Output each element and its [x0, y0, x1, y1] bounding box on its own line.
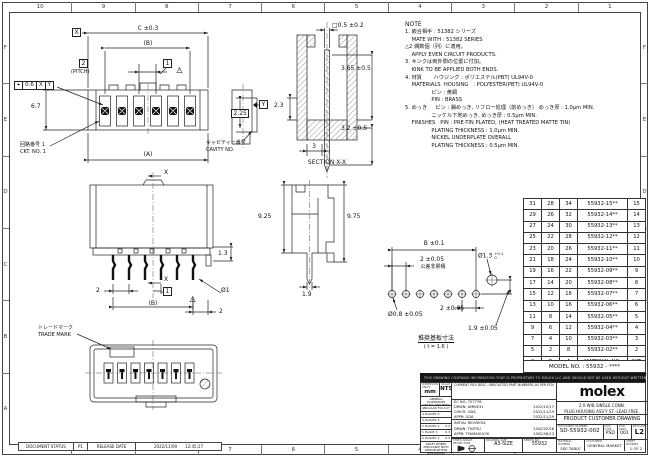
dim-d1-label: Ø1: [221, 287, 230, 294]
section-cut-x-top-label: X: [164, 169, 168, 176]
table-cell: 26: [560, 244, 578, 255]
title-block-middle-column: CURRENT REV DESC: OBSOLETED PART NUMBERS…: [452, 383, 557, 452]
dim-925-label: 9.25: [258, 213, 271, 220]
table-cell: 30: [560, 221, 578, 232]
table-row: 17142055932-08**8: [524, 278, 646, 289]
table-cell: 13: [628, 221, 646, 232]
table-row: 741055932-03**3: [524, 334, 646, 345]
table-cell: 9: [628, 266, 646, 277]
datum-y-label: Y: [259, 100, 268, 109]
grid-ruler-left: F E D C B A: [2, 12, 9, 445]
table-cell: 14: [628, 210, 646, 221]
title-block-right-column: molex 2.0 W/B SINGLE CONN. PLUG HOUSING …: [557, 383, 647, 452]
note-line: ピン : 黄銅: [405, 90, 647, 98]
pitch-text-label: (PITCH): [71, 69, 89, 76]
grid-col-label: 1: [578, 2, 641, 12]
customer-cell: CUSTOMERGENERAL MARKET: [585, 440, 625, 451]
table-cell: 19: [524, 266, 542, 277]
grid-col-label: 2: [514, 2, 577, 12]
note-line: NICKEL UNDERPLATE OVERALL: [405, 135, 647, 143]
table-cell: 24: [560, 255, 578, 266]
note-line: 3. キンクは両外側の位置に付加。: [405, 59, 647, 67]
table-row: 23202655932-11**11: [524, 244, 646, 255]
table-cell: 55932-14**: [578, 210, 628, 221]
grid-col-label: 9: [71, 2, 134, 12]
table-cell: 22: [542, 232, 560, 243]
table-cell: 24: [542, 221, 560, 232]
rear-end-pitch-label: 1: [163, 287, 172, 296]
table-row: 29263255932-14**14: [524, 210, 646, 221]
table-cell: 12: [542, 289, 560, 300]
grid-row-label: F: [2, 12, 9, 83]
table-cell: 4: [628, 323, 646, 334]
initial-revision-label: INITIAL REVISION:: [452, 420, 556, 427]
table-cell: 12: [628, 232, 646, 243]
table-cell: 6: [628, 300, 646, 311]
doc-part-cell: DOC PART001: [618, 425, 632, 439]
molex-logo: molex: [557, 383, 647, 402]
table-cell: 2: [542, 345, 560, 356]
units-cell: DIMENSION UNITS mm: [421, 383, 440, 396]
grid-row-label: B: [2, 300, 9, 372]
third-angle-projection-icon: [456, 445, 480, 452]
rear-dim-b-label: (B): [149, 300, 158, 307]
table-cell: 55932-10**: [578, 255, 628, 266]
table-cell: 55932-12**: [578, 232, 628, 243]
dim-225-label: 2.25: [231, 109, 249, 118]
pcb-pitch-label: 2 ±0.05: [420, 256, 444, 263]
table-cell: 55932-15**: [578, 199, 628, 210]
note-line: PLATING THICKNESS : 1.0μm MIN.: [405, 128, 647, 136]
trademark-label-jp: トレードマーク: [38, 325, 73, 332]
dim-975-label: 9.75: [347, 213, 360, 220]
table-cell: 3: [628, 334, 646, 345]
grid-row-label: C: [2, 228, 9, 300]
pcb-dim-d08-label: Ø0.8 ±0.05: [388, 311, 423, 318]
drawing-description: 2.0 W/B SINGLE CONN. PLUG HOUSING ASS'Y …: [557, 402, 647, 415]
model-no-strip: MODEL NO. : 55932 - ****: [523, 360, 646, 373]
dim-b-label: (B): [144, 40, 153, 47]
grid-col-label: 3: [451, 2, 514, 12]
table-cell: 20: [560, 278, 578, 289]
note-line: △2 偶数個（列）に適用。: [405, 44, 647, 52]
table-cell: 26: [542, 210, 560, 221]
table-row: 27243055932-13**13: [524, 221, 646, 232]
table-cell: 2: [628, 345, 646, 356]
drawing-sheet: 10 9 8 7 6 5 4 3 2 1 10 9 8 7 6 5 4 3 2 …: [0, 0, 650, 457]
pcb-tolerance-note-jp: 公差非累積: [420, 264, 445, 271]
document-number-row: DOCUMENT NUMBERSD-55932-002 DOC TYPEPSD …: [557, 425, 647, 440]
end-pitch-dim-label: 1: [163, 59, 172, 68]
note-line: PLATING THICKNESS : 0.5μm MIN.: [405, 143, 647, 151]
pitch-dim-label: 2: [79, 59, 88, 68]
material-customer-row: MATERIAL NUMBERSEE TABLE CUSTOMERGENERAL…: [557, 440, 647, 451]
table-cell: 55932-09**: [578, 266, 628, 277]
document-status-label: DOCUMENT STATUS: [18, 442, 74, 451]
series-cell: SERIES NO. 55932: [523, 439, 556, 452]
current-rev-desc: CURRENT REV DESC: OBSOLETED PART NUMBERS…: [452, 383, 556, 400]
grid-col-label: 5: [324, 445, 387, 455]
table-cell: 55932-13**: [578, 221, 628, 232]
table-cell: 21: [524, 255, 542, 266]
table-cell: 7: [628, 289, 646, 300]
table-cell: 55932-03**: [578, 334, 628, 345]
table-cell: 55932-04**: [578, 323, 628, 334]
projection-size-row: THIRD ANGLE PROJECTION DRAWING SIZE A3-S…: [452, 438, 556, 452]
grid-ruler-top: 10 9 8 7 6 5 4 3 2 1: [9, 2, 641, 12]
ckt-no-label-en: CKT. NO. 1: [20, 149, 46, 156]
title-block: DIMENSION UNITS mm SCALE NTS GENERAL TOL…: [420, 382, 646, 453]
table-cell: 13: [524, 300, 542, 311]
table-cell: 55932-11**: [578, 244, 628, 255]
dim-square-label: □0.5 ±0.2: [332, 22, 364, 29]
note-line: ニッケル下地めっき, めっき厚 : 0.5μm MIN.: [405, 113, 647, 121]
table-cell: 14: [542, 278, 560, 289]
note-line: 4. 材質 ハウジング : ポリエステル(PBT) UL94V-0: [405, 75, 647, 83]
datum-x-label: X: [72, 28, 81, 37]
rear-dim-2-label: 2: [219, 308, 223, 315]
table-cell: 8: [560, 345, 578, 356]
pcb-dim-b-label: B ±0.1: [424, 240, 445, 247]
pcb-title-jp: 推奨基板寸法: [418, 335, 454, 343]
table-row: 52855932-02**2: [524, 345, 646, 356]
table-cell: 11: [524, 311, 542, 322]
table-cell: 6: [542, 323, 560, 334]
table-cell: 28: [542, 199, 560, 210]
table-cell: 20: [542, 244, 560, 255]
scale-cell: SCALE NTS: [440, 383, 451, 396]
table-cell: 5: [628, 311, 646, 322]
material-table: 31283455932-15**15 29263255932-14**14 27…: [523, 198, 646, 368]
table-row: 13101655932-06**6: [524, 300, 646, 311]
units-value: mm: [421, 389, 439, 395]
third-angle-cell: THIRD ANGLE PROJECTION: [452, 439, 485, 452]
scale-value: NTS: [440, 386, 451, 392]
release-date-label: RELEASE DATE: [88, 442, 136, 451]
table-row: 1181455932-05**5: [524, 311, 646, 322]
revision-triangle-icon: △2: [175, 66, 184, 74]
note-line: PIN : BRASS: [405, 97, 647, 105]
table-row: 15121855932-07**7: [524, 289, 646, 300]
ckt-no-label-jp: 回路番号 1: [20, 142, 45, 149]
position-datum-1: X: [37, 82, 46, 89]
grid-col-label: 5: [324, 2, 387, 12]
table-cell: 34: [560, 199, 578, 210]
sheet-number-cell: SHEET NUMBER1 OF 2: [625, 440, 647, 451]
table-cell: 28: [560, 232, 578, 243]
grid-col-label: 7: [198, 2, 261, 12]
dim-height-label: 6.7: [31, 103, 41, 110]
note-line: 5. めっき ピン : 錫めっき, リフロー処理（前めっき） めっき厚 : 1.…: [405, 105, 647, 113]
note-line: MATERIALS HOUSING : POLYESTER(PBT) UL94V…: [405, 82, 647, 90]
position-symbol-icon: ⌖: [15, 82, 23, 89]
table-cell: 15: [524, 289, 542, 300]
table-cell: 18: [542, 255, 560, 266]
table-cell: 12: [560, 323, 578, 334]
document-status-value: P1: [74, 442, 88, 451]
table-cell: 16: [542, 266, 560, 277]
revision-cell: REVISIONL2: [632, 425, 647, 439]
table-cell: 27: [524, 221, 542, 232]
table-cell: 4: [542, 334, 560, 345]
pcb-dim-d13-label: Ø1.3 +0.10: [478, 252, 503, 260]
dim-c-label: C ±0.3: [138, 25, 159, 32]
drawing-size-cell: DRAWING SIZE A3-SIZE: [485, 439, 523, 452]
table-cell: 10: [560, 334, 578, 345]
cavity-no-label-jp: キャビティー番号: [206, 140, 246, 147]
position-tolerance-frame: ⌖ 0.6 X Y: [14, 81, 54, 90]
pcb-dim-2-label: 2 ±0.05: [440, 305, 464, 312]
position-tolerance-value: 0.6: [23, 82, 37, 89]
table-cell: 5: [524, 345, 542, 356]
table-cell: 14: [560, 311, 578, 322]
notes-title: NOTE: [405, 21, 647, 28]
dim-365-label: 3.65 ±0.5: [341, 65, 371, 72]
draft-note: DRAFT WHERE APPLICABLE MUST REMAIN WITHI…: [421, 442, 451, 454]
notes-block: NOTE 1. 嵌合相手 : 51382 シリーズ MATE WITH : 51…: [405, 21, 647, 151]
rear-pitch-label: 2: [96, 287, 100, 294]
dim-19-label: 1.9: [302, 291, 312, 298]
table-row: 31283455932-15**15: [524, 199, 646, 210]
table-cell: 22: [560, 266, 578, 277]
table-cell: 17: [524, 278, 542, 289]
doc-type-cell: DOC TYPEPSD: [604, 425, 619, 439]
cavity-no-label-en: CAVITY NO.: [206, 147, 234, 154]
dim-32-label: 3.2 ±0.5: [341, 125, 367, 132]
document-status-strip: DOCUMENT STATUS P1 RELEASE DATE 2022/11/…: [18, 442, 222, 451]
note-line: FINISHES PIN : PRE-TIN PLATED, (HEAT TRE…: [405, 120, 647, 128]
table-cell: 7: [524, 334, 542, 345]
table-cell: 18: [560, 289, 578, 300]
note-line: 1. 嵌合相手 : 51382 シリーズ: [405, 29, 647, 37]
table-cell: 8: [628, 278, 646, 289]
table-cell: 8: [542, 311, 560, 322]
section-xx-label: SECTION X-X: [308, 159, 346, 166]
table-cell: 23: [524, 244, 542, 255]
table-cell: 29: [524, 210, 542, 221]
title-block-left-column: DIMENSION UNITS mm SCALE NTS GENERAL TOL…: [421, 383, 452, 452]
table-cell: 55932-02**: [578, 345, 628, 356]
trademark-label-en: TRADE MARK: [38, 332, 71, 339]
table-cell: 25: [524, 232, 542, 243]
release-date-value: 2022/11/0912:45:27: [136, 442, 222, 451]
grid-row-label: A: [2, 373, 9, 445]
drawing-type-label: PRODUCT CUSTOMER DRAWING: [557, 415, 647, 425]
grid-col-label: 10: [9, 2, 71, 12]
grid-col-label: 4: [388, 2, 451, 12]
table-row: 25222855932-12**12: [524, 232, 646, 243]
table-cell: 55932-06**: [578, 300, 628, 311]
pcb-dim-19-label: 1.9 ±0.05: [468, 325, 498, 332]
table-row: 961255932-04**4: [524, 323, 646, 334]
dim-3-label: 3: [312, 143, 316, 150]
table-cell: 15: [628, 199, 646, 210]
grid-col-label: 6: [261, 445, 324, 455]
general-tolerances-label: GENERAL TOLERANCES (UNLESS SPECIFIED): [421, 397, 451, 406]
table-cell: 16: [560, 300, 578, 311]
table-cell: 10: [628, 255, 646, 266]
dim-13-label: 1.3: [218, 250, 228, 257]
section-cut-x-bottom-label: X: [164, 276, 168, 283]
table-row: 21182455932-10**10: [524, 255, 646, 266]
proprietary-notice: THIS DRAWING CONTAINS INFORMATION THAT I…: [420, 373, 646, 382]
grid-col-label: 8: [135, 2, 198, 12]
note-line: KINK TO BE APPLIED BOTH ENDS.: [405, 67, 647, 75]
dim-23-label: 2.3: [274, 102, 284, 109]
table-cell: 11: [628, 244, 646, 255]
grid-col-label: 6: [261, 2, 324, 12]
table-cell: 55932-07**: [578, 289, 628, 300]
position-datum-2: Y: [46, 82, 53, 89]
table-cell: 31: [524, 199, 542, 210]
table-cell: 55932-08**: [578, 278, 628, 289]
grid-row-label: E: [2, 83, 9, 155]
material-cell: MATERIAL NUMBERSEE TABLE: [557, 440, 585, 451]
revision-triangle-icon: △2: [188, 295, 197, 303]
table-cell: 10: [542, 300, 560, 311]
grid-row-label: D: [2, 156, 9, 228]
table-row: 19162255932-09**9: [524, 266, 646, 277]
table-cell: 32: [560, 210, 578, 221]
pcb-scale-note: ( t = 1.6 ): [424, 344, 448, 351]
table-cell: 9: [524, 323, 542, 334]
doc-number-cell: DOCUMENT NUMBERSD-55932-002: [557, 425, 604, 439]
table-cell: 55932-05**: [578, 311, 628, 322]
dim-a-label: (A): [144, 151, 153, 158]
